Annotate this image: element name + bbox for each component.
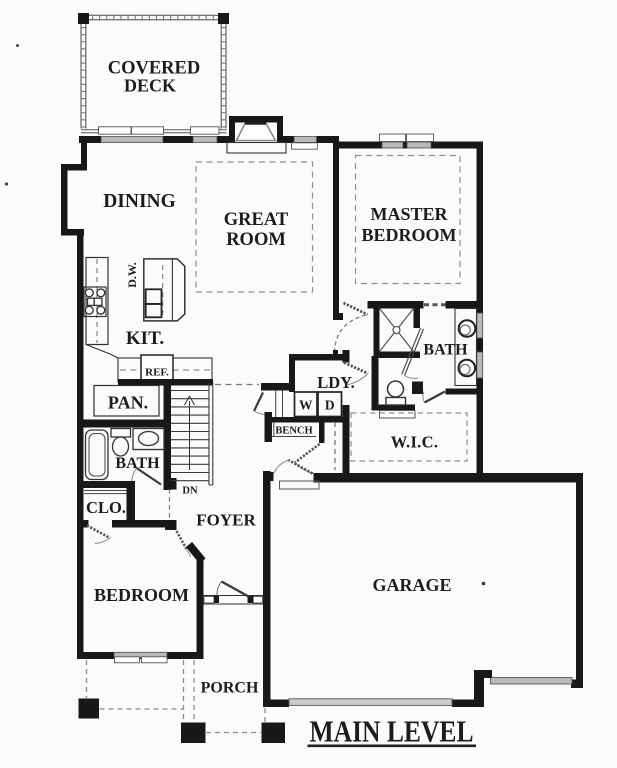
svg-text:MASTER: MASTER bbox=[370, 204, 448, 224]
svg-text:BATH: BATH bbox=[423, 342, 468, 359]
svg-text:BENCH: BENCH bbox=[275, 426, 312, 437]
svg-text:GARAGE: GARAGE bbox=[372, 575, 451, 595]
svg-text:REF.: REF. bbox=[145, 367, 169, 379]
svg-text:DECK: DECK bbox=[124, 76, 176, 96]
svg-text:D: D bbox=[325, 398, 335, 413]
svg-text:BEDROOM: BEDROOM bbox=[94, 585, 189, 605]
svg-text:D.W.: D.W. bbox=[125, 262, 139, 288]
svg-text:FOYER: FOYER bbox=[196, 511, 256, 530]
svg-text:W.I.C.: W.I.C. bbox=[391, 433, 439, 452]
svg-text:ROOM: ROOM bbox=[226, 230, 286, 250]
svg-text:KIT.: KIT. bbox=[126, 328, 164, 349]
svg-text:PORCH: PORCH bbox=[201, 680, 259, 697]
svg-text:PAN.: PAN. bbox=[108, 393, 148, 413]
svg-text:GREAT: GREAT bbox=[224, 210, 289, 230]
svg-text:CLO.: CLO. bbox=[86, 498, 126, 517]
svg-text:DN: DN bbox=[182, 486, 198, 497]
svg-text:BEDROOM: BEDROOM bbox=[361, 225, 456, 245]
svg-text:DINING: DINING bbox=[103, 191, 176, 212]
svg-text:LDY.: LDY. bbox=[317, 373, 354, 392]
svg-text:W: W bbox=[299, 398, 313, 413]
svg-text:MAIN LEVEL: MAIN LEVEL bbox=[310, 714, 474, 749]
